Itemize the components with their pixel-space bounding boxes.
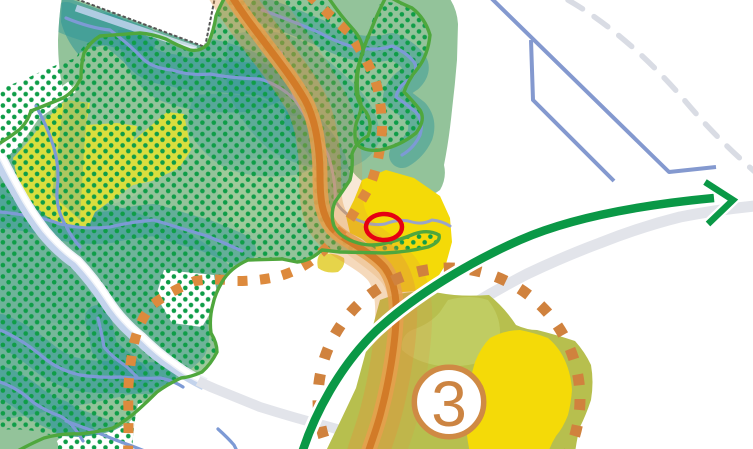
svg-text:3: 3 xyxy=(431,368,467,440)
